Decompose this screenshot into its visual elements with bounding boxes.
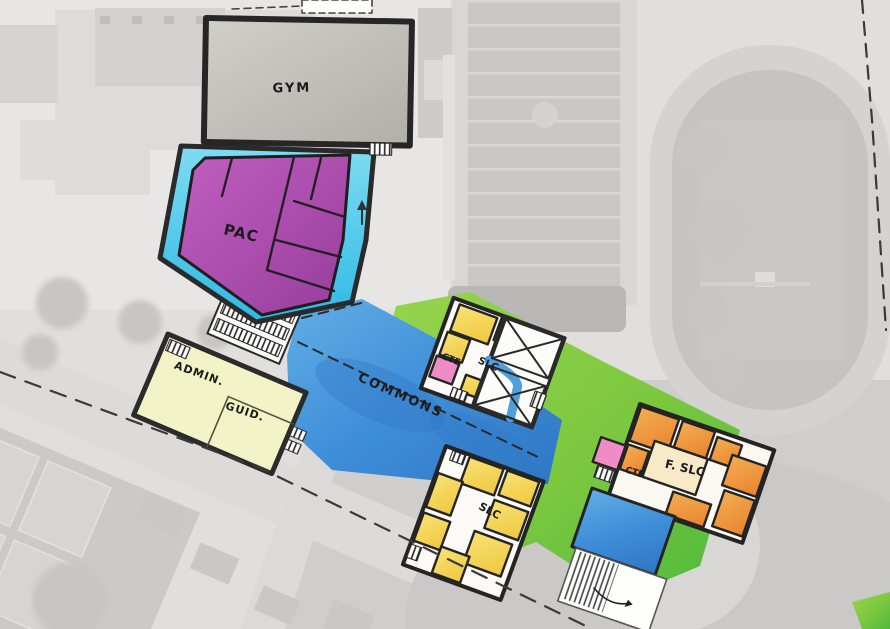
gym-label: GYM — [272, 81, 311, 97]
gym-building — [204, 0, 412, 156]
aerial-football-field — [443, 0, 637, 306]
aerial-running-track — [650, 45, 890, 435]
site-plan-canvas: GYM PAC ADMIN. GUID. COMMONS CTE SLC SLC… — [0, 0, 890, 629]
stairs-icon — [370, 143, 392, 155]
site-plan-svg: GYM PAC ADMIN. GUID. COMMONS CTE SLC SLC… — [0, 0, 890, 629]
dashed-future-outline — [302, 0, 372, 13]
aerial-west-bleachers — [443, 55, 455, 280]
